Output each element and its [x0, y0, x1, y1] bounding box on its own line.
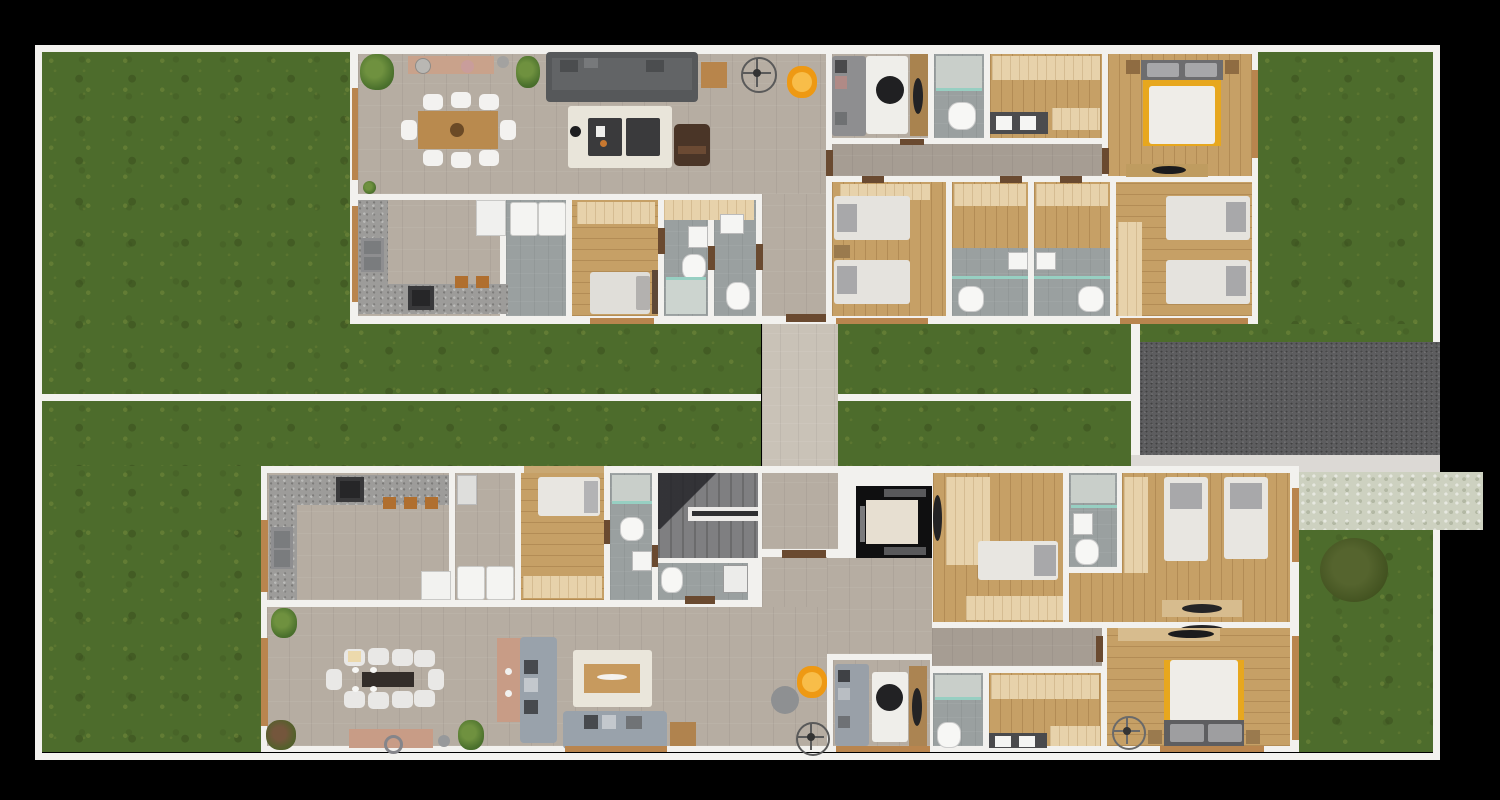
place-plate	[352, 686, 359, 692]
office-sofa-pillow	[835, 112, 847, 125]
dining-chair	[479, 150, 499, 166]
bath5-shower	[1071, 475, 1115, 503]
console-vase	[384, 735, 403, 754]
fence-right-upper	[1433, 45, 1440, 342]
bathR-toilet	[1078, 286, 1104, 312]
place-plate	[370, 667, 377, 673]
window-sill	[836, 318, 928, 324]
door-sill	[1102, 148, 1109, 174]
lot-fence-left	[35, 45, 42, 760]
bedroom2-pillow	[837, 204, 857, 232]
yard-top-left	[42, 52, 352, 394]
door-sill	[1000, 176, 1022, 183]
grass-below-top-house-left	[352, 324, 761, 394]
potted-plant	[458, 720, 484, 750]
bottom-hall-vanity-sink	[995, 736, 1011, 747]
bath2-sink	[720, 214, 744, 234]
window-sill	[352, 88, 358, 180]
kitchen-sink-basin	[364, 241, 381, 254]
lounge-pillow	[838, 716, 850, 728]
foyer-door-sill	[782, 550, 826, 558]
bedroom6-wardrobe-handle	[933, 495, 942, 541]
bathL-toilet	[958, 286, 984, 312]
bedroom2-pillow	[837, 266, 857, 294]
armchair-orange-seat	[792, 72, 812, 92]
sink-basin	[274, 550, 290, 567]
bottom-master-tv	[1168, 630, 1214, 638]
living-sideboard	[497, 638, 521, 722]
grass-below-top-house-right	[838, 324, 1131, 394]
master-pillow	[1147, 63, 1179, 77]
dining-chair	[368, 692, 389, 709]
sofa-pillow	[524, 700, 538, 714]
small-shrub	[363, 181, 376, 194]
bottom-hall-vanity-sink	[1019, 736, 1035, 747]
bath3-toilet	[948, 102, 976, 130]
bath6-shower	[612, 475, 650, 501]
grass-mid-right	[838, 401, 1131, 466]
plate-stack	[415, 58, 431, 74]
sofa-cushion	[584, 58, 598, 68]
kitchen-appliance	[421, 571, 451, 600]
bath7-shower	[723, 565, 748, 593]
bottom-master-pillow	[1170, 724, 1204, 742]
bottom-master-duvet	[1170, 660, 1238, 722]
bedroom4-pillow	[1170, 483, 1202, 509]
potted-plant	[516, 56, 540, 88]
bath3-shower-glass	[936, 88, 982, 91]
bath6-sink	[632, 551, 652, 571]
elevator-cab	[866, 500, 918, 544]
dining-chair	[500, 120, 516, 140]
window-sill	[1292, 636, 1299, 740]
dining-chair	[423, 94, 443, 110]
fence-driveway-side	[1131, 324, 1140, 472]
bedroom4-closet	[1124, 477, 1148, 573]
potted-plant	[266, 720, 296, 750]
entry-walkway	[1299, 472, 1483, 530]
dining-chair	[479, 94, 499, 110]
sofa-pillow	[602, 715, 616, 729]
bathL-shower-glass	[952, 276, 1028, 279]
bedroom1-headboard	[652, 270, 658, 314]
window-sill	[1160, 746, 1264, 752]
bottom-master-pillow	[1208, 724, 1242, 742]
kettle	[497, 56, 509, 68]
bath3-shower	[936, 56, 982, 90]
door-sill	[658, 228, 665, 254]
door-sill	[862, 176, 884, 183]
bedroom1-pillow	[636, 276, 650, 310]
bathR-shower-glass	[1034, 276, 1110, 279]
window-sill	[1292, 488, 1299, 562]
table-centerpiece	[450, 123, 464, 137]
door-sill	[652, 545, 658, 567]
window-sill	[565, 746, 667, 752]
window-sill	[590, 318, 654, 324]
stove-top	[412, 290, 430, 306]
top-entry-hall-floor	[762, 194, 826, 316]
door-sill	[826, 150, 833, 176]
coffee-table	[588, 118, 622, 156]
washer	[457, 566, 485, 600]
ceiling-fan-hub	[753, 69, 761, 77]
door-sill	[1096, 636, 1103, 662]
bedside-stool	[1148, 730, 1162, 744]
hall-vanity-sink	[1020, 116, 1036, 130]
dining-chair	[326, 669, 342, 690]
elevator-rail	[860, 506, 865, 542]
bathR-sink	[1036, 252, 1056, 270]
sofa-pillow	[524, 660, 538, 674]
lounge-pillow	[838, 688, 850, 700]
bar-stool	[425, 497, 438, 509]
bath1-shower-tray	[666, 280, 706, 314]
sideboard-knob	[505, 690, 512, 697]
armchair-orange-seat	[802, 672, 822, 692]
sofa-cushion	[560, 60, 578, 72]
hall-under-elevator-floor	[827, 558, 932, 654]
dining-chair	[401, 120, 417, 140]
bath6-shower-glass	[612, 501, 652, 504]
door-sill	[708, 246, 715, 270]
master-pillow	[1185, 63, 1217, 77]
elevator-door	[884, 547, 926, 555]
nightstand	[1126, 60, 1140, 74]
bottom-stove-top	[340, 481, 360, 498]
table-deco-squiggle	[597, 674, 627, 680]
fence-divider-right	[838, 394, 1131, 401]
bedroom5-pillow	[584, 481, 598, 513]
hall-vanity-sink	[996, 116, 1012, 130]
bedroom5-closet	[523, 576, 602, 598]
ceiling-fan-hub	[1123, 727, 1131, 735]
bottom-hall-bench	[1050, 726, 1100, 746]
potted-plant	[271, 608, 297, 638]
floor-lamp	[570, 126, 581, 137]
bar-stool	[476, 276, 489, 288]
bath5-sink	[1073, 513, 1093, 535]
sink-basin	[274, 531, 290, 548]
small-stool	[438, 735, 450, 747]
yard-bottom-left	[42, 466, 261, 752]
foyer-floor-lower	[762, 557, 827, 613]
side-table	[701, 62, 727, 88]
kitchen-sink-basin	[364, 257, 381, 270]
table-deco	[600, 140, 607, 147]
office-sofa-pillow	[835, 60, 847, 73]
nightstand	[1225, 60, 1239, 74]
dining-chair	[414, 650, 435, 667]
pink-bowl	[461, 60, 474, 73]
lounge-round-table	[876, 684, 903, 711]
foyer-floor	[762, 473, 838, 549]
window-sill	[1120, 318, 1248, 324]
driveway	[1140, 342, 1440, 455]
armchair-brown	[674, 124, 710, 166]
dryer	[538, 202, 566, 236]
bedroom4-pillow	[1230, 483, 1262, 509]
chair-cushion	[348, 651, 361, 662]
pantry-cabinet	[457, 475, 477, 505]
sofa-cushion	[646, 60, 664, 72]
bath4-shower-glass	[935, 697, 981, 700]
elevator-door	[884, 489, 926, 497]
lot-fence-bottom	[35, 753, 1440, 760]
yard-top-right	[1258, 52, 1433, 342]
bath7-toilet	[661, 567, 683, 593]
dining-chair	[392, 691, 413, 708]
fence-right-lower	[1433, 528, 1440, 760]
dining-chair	[423, 150, 443, 166]
dining-chair	[414, 690, 435, 707]
master-bed-duvet	[1149, 86, 1215, 144]
place-plate	[370, 686, 377, 692]
window-sill	[352, 206, 358, 302]
bath5-toilet	[1075, 539, 1099, 565]
dining-chair	[451, 92, 471, 108]
grass-strip-above-driveway	[1131, 324, 1433, 342]
closet-left-wardrobe	[954, 184, 1026, 206]
dining-chair	[368, 648, 389, 665]
hall-closet-band	[992, 56, 1100, 80]
door-sill	[604, 520, 610, 544]
hall-bench	[1052, 108, 1100, 130]
potted-plant	[360, 54, 394, 90]
window-sill	[524, 466, 604, 473]
bathL-sink	[1008, 252, 1028, 270]
grass-mid-left	[42, 401, 761, 466]
bedroom6-dresser	[966, 596, 1063, 620]
bar-stool	[383, 497, 396, 509]
office-round-table	[876, 76, 904, 104]
top-corridor-floor	[832, 144, 1102, 176]
dining-chair	[451, 152, 471, 168]
bedroom1-closet	[577, 202, 655, 224]
central-path	[762, 324, 838, 478]
bath4-shower	[935, 675, 981, 699]
sofa-pillow	[626, 716, 642, 729]
bottom-dining-table	[362, 672, 414, 687]
kitchen-cabinet	[476, 200, 506, 236]
bath4-toilet	[937, 722, 961, 748]
bedside-stool	[1246, 730, 1260, 744]
bar-stool	[404, 497, 417, 509]
door-sill	[900, 139, 924, 145]
bedroom3-pillow	[1226, 202, 1246, 232]
lounge-sideboard-handle	[912, 688, 922, 726]
office-sofa-pillow	[835, 76, 847, 89]
window-sill	[836, 746, 930, 752]
bedroom6-pillow	[1034, 545, 1056, 576]
gray-pouf	[771, 686, 799, 714]
dining-chair	[392, 649, 413, 666]
bath1-shower-glass	[666, 277, 706, 280]
armchair-brown-throw	[678, 146, 706, 154]
bedroom4-nook-floor	[1069, 573, 1122, 622]
bar-stool	[455, 276, 468, 288]
wood-side-table	[670, 722, 696, 746]
place-plate	[352, 667, 359, 673]
sideboard-knob	[505, 668, 512, 675]
bath5-shower-glass	[1071, 505, 1117, 508]
master-tv	[1152, 166, 1186, 174]
top-house-entry-door	[786, 314, 826, 322]
door-sill	[685, 596, 715, 604]
sofa-pillow	[524, 678, 538, 692]
door-sill	[756, 244, 763, 270]
table-deco-paper	[596, 126, 605, 137]
ceiling-fan-hub	[807, 733, 815, 741]
bedroom2-nightstand	[834, 245, 850, 258]
window-sill	[261, 638, 268, 726]
bedroom3-pillow	[1226, 266, 1246, 296]
dining-chair	[428, 669, 444, 690]
tree-canopy	[1320, 538, 1388, 602]
bath2-toilet	[726, 282, 750, 310]
washer	[510, 202, 538, 236]
bath6-toilet	[620, 517, 644, 541]
fence-divider-left	[42, 394, 761, 401]
closet-right-wardrobe	[1036, 184, 1108, 206]
floor-plan-render	[0, 0, 1500, 800]
coffee-table	[626, 118, 660, 156]
sofa-pillow	[584, 715, 598, 729]
window-sill	[1252, 70, 1258, 158]
bath1-sink	[688, 226, 708, 248]
bedroom3-closet	[1118, 222, 1142, 316]
lounge-pillow	[838, 670, 850, 682]
bottom-corridor-floor	[932, 628, 1102, 666]
dryer	[486, 566, 514, 600]
dining-chair	[344, 691, 365, 708]
stair-rail-slot	[692, 511, 758, 516]
door-sill	[1060, 176, 1082, 183]
office-sideboard-handle	[913, 78, 923, 114]
window-sill	[261, 520, 268, 592]
bottom-hall-closet-band	[991, 675, 1099, 699]
bedroom4-sideboard-handle	[1182, 604, 1222, 613]
